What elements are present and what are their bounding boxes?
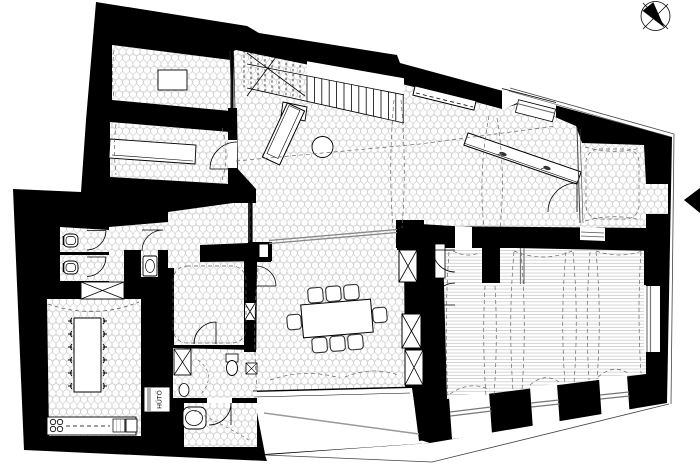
svg-text:HŰTŐ: HŰTŐ (155, 390, 164, 408)
